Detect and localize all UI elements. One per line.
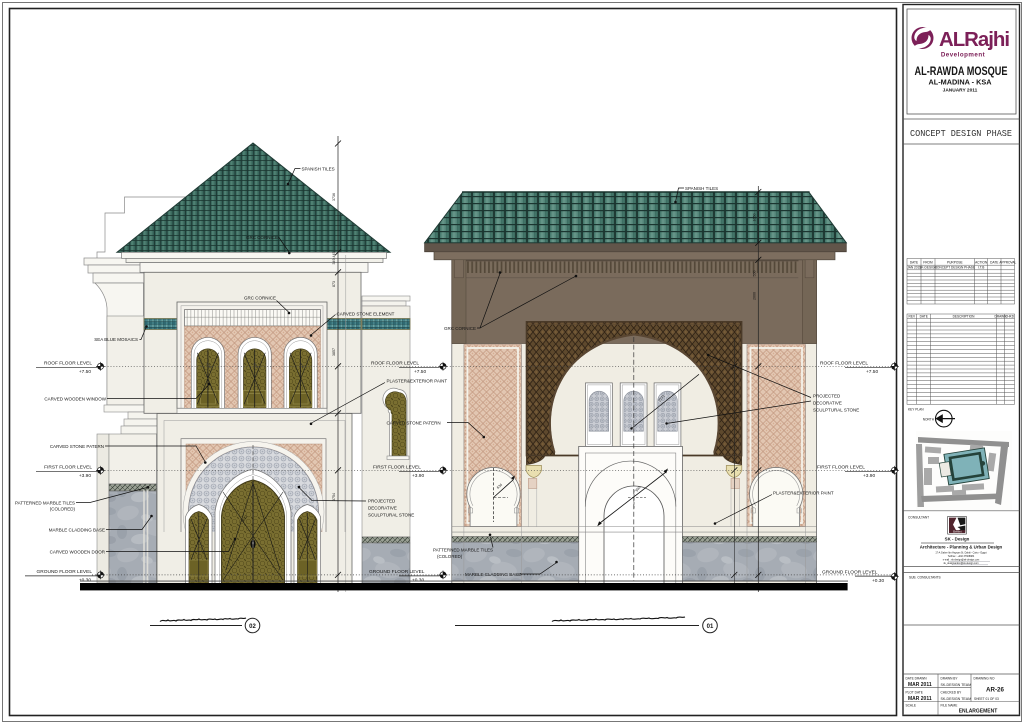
svg-text:SUB. CONSULTANTS: SUB. CONSULTANTS	[909, 576, 941, 580]
svg-text:PLASTER&EXTERIOR PAINT: PLASTER&EXTERIOR PAINT	[773, 491, 834, 496]
svg-text:(COLORED): (COLORED)	[437, 554, 463, 559]
svg-text:GROUND FLOOR LEVEL: GROUND FLOOR LEVEL	[369, 569, 425, 575]
svg-text:DRAWING NO: DRAWING NO	[974, 677, 995, 681]
svg-text:SPANISH TILES: SPANISH TILES	[302, 167, 335, 172]
svg-text:GROUND FLOOR LEVEL: GROUND FLOOR LEVEL	[37, 569, 93, 575]
svg-text:MARBLE CLADDING BASE: MARBLE CLADDING BASE	[465, 572, 521, 577]
svg-text:ACTION: ACTION	[975, 260, 988, 264]
svg-text:+0.30: +0.30	[412, 577, 424, 583]
svg-text:+3.90: +3.90	[412, 473, 424, 479]
svg-text:+7.50: +7.50	[79, 369, 91, 375]
svg-text:+0.30: +0.30	[79, 577, 91, 583]
svg-text:1650: 1650	[753, 214, 757, 222]
svg-text:FIRST FLOOR LEVEL: FIRST FLOOR LEVEL	[373, 465, 421, 471]
svg-text:349,445: 349,445	[332, 252, 336, 265]
svg-text:sk_designandco@sk-design.com: sk_designandco@sk-design.com	[943, 562, 978, 565]
svg-text:DECORATIVE: DECORATIVE	[368, 506, 397, 511]
svg-text:CONCEPT DESIGN PHASE: CONCEPT DESIGN PHASE	[910, 128, 1012, 139]
svg-text:GROUND FLOOR LEVEL: GROUND FLOOR LEVEL	[822, 569, 878, 575]
svg-text:8700: 8700	[729, 440, 733, 448]
svg-text:SHEET 01 OF 03: SHEET 01 OF 03	[974, 697, 999, 701]
svg-text:873: 873	[332, 281, 336, 287]
svg-text:SK-DESIGN TEAM: SK-DESIGN TEAM	[941, 683, 972, 687]
svg-text:SK-DESIGN TEAM: SK-DESIGN TEAM	[941, 697, 972, 701]
svg-text:I.T.B: I.T.B	[978, 266, 984, 270]
svg-text:3857: 3857	[332, 348, 336, 356]
svg-text:SEA BLUE MOSAICS: SEA BLUE MOSAICS	[94, 337, 138, 342]
svg-text:PATTERNED MARBLE TILES: PATTERNED MARBLE TILES	[433, 548, 493, 553]
svg-text:SCULPTURAL STONE: SCULPTURAL STONE	[368, 513, 414, 518]
svg-text:MARBLE CLADDING BASE: MARBLE CLADDING BASE	[49, 528, 105, 533]
svg-text:CARVED STONE ELEMENT: CARVED STONE ELEMENT	[337, 312, 395, 317]
svg-text:CONSULTANT: CONSULTANT	[908, 516, 929, 520]
svg-text:DRAWN BY: DRAWN BY	[941, 677, 959, 681]
svg-text:CARVED WOODEN DOOR: CARVED WOODEN DOOR	[50, 550, 106, 555]
svg-text:+3.90: +3.90	[79, 473, 91, 479]
svg-text:Element: Element	[953, 531, 962, 534]
svg-text:PURPOSE: PURPOSE	[947, 260, 963, 264]
svg-text:DATE: DATE	[910, 260, 918, 264]
svg-text:+3.90: +3.90	[863, 473, 875, 479]
svg-text:CARVED STONE PATERN: CARVED STONE PATERN	[50, 444, 104, 449]
svg-text:02: 02	[249, 624, 256, 630]
svg-text:ENLARGEMENT: ENLARGEMENT	[959, 709, 998, 715]
svg-text:ALRajhi: ALRajhi	[939, 29, 1009, 51]
svg-text:CARVED STONE PATERN: CARVED STONE PATERN	[387, 421, 441, 426]
svg-text:AL-MADINA - KSA: AL-MADINA - KSA	[929, 78, 993, 87]
svg-text:CONCEPT DESIGN PHASE: CONCEPT DESIGN PHASE	[935, 266, 975, 270]
svg-text:SCALE: SCALE	[906, 704, 916, 708]
svg-text:FROM: FROM	[923, 260, 933, 264]
svg-text:CHKD: CHKD	[1005, 315, 1015, 319]
svg-text:MAR 2011: MAR 2011	[908, 696, 932, 702]
svg-text:MAR 2011: MAR 2011	[908, 682, 932, 688]
svg-text:01: 01	[707, 624, 714, 630]
svg-text:+7.50: +7.50	[414, 369, 426, 375]
svg-text:NORTH: NORTH	[923, 418, 935, 422]
svg-text:SCULPTURAL STONE: SCULPTURAL STONE	[813, 408, 859, 413]
svg-text:PROJECTED: PROJECTED	[368, 499, 396, 504]
svg-text:AL-RAWDA MOSQUE: AL-RAWDA MOSQUE	[915, 64, 1008, 78]
svg-text:CARVED WOODEN WINDOW: CARVED WOODEN WINDOW	[44, 397, 106, 402]
svg-text:PATTERNED MARBLE TILES: PATTERNED MARBLE TILES	[15, 501, 75, 506]
svg-text:Development: Development	[941, 52, 985, 59]
svg-text:+7.50: +7.50	[866, 369, 878, 375]
svg-text:GRC CORNICE: GRC CORNICE	[444, 326, 476, 331]
svg-text:DESCRIPTION: DESCRIPTION	[953, 315, 975, 319]
svg-text:ROOF FLOOR LEVEL: ROOF FLOOR LEVEL	[371, 361, 419, 367]
svg-text:FILE NAME: FILE NAME	[941, 704, 958, 708]
svg-text:DECORATIVE: DECORATIVE	[813, 401, 842, 406]
svg-text:GRC CORNICE: GRC CORNICE	[246, 235, 278, 240]
svg-text:3754: 3754	[332, 493, 336, 501]
svg-text:(COLORED): (COLORED)	[50, 507, 76, 512]
svg-text:PLASTER&EXTERIOR PAINT: PLASTER&EXTERIOR PAINT	[387, 379, 448, 384]
svg-text:2000: 2000	[753, 292, 757, 300]
svg-text:PROJECTED: PROJECTED	[813, 394, 841, 399]
svg-text:KEY PLAN: KEY PLAN	[908, 408, 924, 412]
svg-text:GRC CORNICE: GRC CORNICE	[244, 296, 276, 301]
svg-text:AR-26: AR-26	[986, 687, 1004, 694]
svg-text:APPROVAL: APPROVAL	[999, 260, 1016, 264]
svg-text:DATE: DATE	[920, 315, 928, 319]
svg-text:FIRST FLOOR LEVEL: FIRST FLOOR LEVEL	[817, 465, 865, 471]
svg-text:DATE DRAWN: DATE DRAWN	[906, 677, 928, 681]
svg-text:3736: 3736	[332, 193, 336, 201]
svg-text:Architecture - Planning &: Architecture - Planning & Urban Design	[920, 545, 1003, 550]
svg-text:SPANISH TILES: SPANISH TILES	[685, 186, 718, 191]
svg-text:SK - Design: SK - Design	[945, 537, 970, 542]
svg-text:REV: REV	[909, 315, 916, 319]
svg-text:+0.30: +0.30	[872, 578, 884, 584]
svg-text:ROOF FLOOR LEVEL: ROOF FLOOR LEVEL	[820, 361, 868, 367]
svg-text:DATE: DATE	[990, 260, 998, 264]
svg-text:JANUARY 2011: JANUARY 2011	[943, 88, 978, 94]
svg-text:CHECKED BY: CHECKED BY	[941, 690, 963, 694]
svg-text:550: 550	[753, 271, 757, 277]
svg-text:ROOF FLOOR LEVEL: ROOF FLOOR LEVEL	[44, 361, 92, 367]
svg-text:FIRST FLOOR LEVEL: FIRST FLOOR LEVEL	[44, 465, 92, 471]
svg-text:PLOT DATE: PLOT DATE	[906, 690, 923, 694]
